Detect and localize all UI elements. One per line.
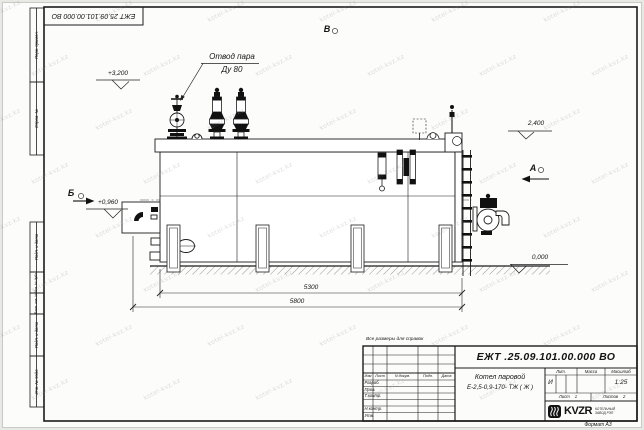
view-label-v: В: [320, 24, 334, 35]
elevation-valves: +3,200: [96, 70, 140, 79]
col-header-data: Дата: [438, 374, 455, 380]
sheets-total-cell: Листов 2: [591, 394, 637, 401]
steam-outlet-valve: [167, 95, 202, 139]
dimension-support-span: 5300: [291, 284, 331, 293]
scale-value: 1:25: [605, 377, 637, 389]
lit-header: Лит.: [545, 369, 577, 375]
margin-label-inv-podl: Инв. № подл.: [30, 356, 44, 407]
margin-label-vzam-inv: Взам. инв. №: [30, 293, 44, 314]
steam-outlet-callout-line2: Ду 80: [206, 64, 258, 75]
safety-valve-2: [233, 88, 250, 139]
sheet-number-cell: Лист 1: [545, 394, 591, 401]
row-label-tkontr: Т.контр.: [365, 394, 387, 400]
margin-label-perv-primen: Перв. примен.: [30, 8, 44, 82]
elevation-burner: +0,960: [88, 199, 128, 208]
rotated-view-icon: [78, 193, 83, 198]
elevation-ground: 0,000: [520, 254, 560, 263]
manufacturer-logo: KVZR КОТЕЛЬНЫЙ ЗАВОД РЭП: [548, 402, 635, 420]
row-label-razrab: Разраб.: [365, 381, 387, 387]
drawing-sheet: ЕЖТ 25.09.101.00.000 ВО Перв. примен. Сп…: [0, 0, 644, 430]
top-stamp-number: ЕЖТ 25.09.101.00.000 ВО: [44, 7, 143, 25]
safety-valve-1: [209, 88, 226, 139]
view-label-a: А: [526, 163, 540, 174]
access-ladder: [462, 150, 473, 276]
sheets-value: 2: [623, 395, 625, 399]
margin-label-sprav-no: Справ. №: [30, 82, 44, 155]
col-header-list: Лист: [373, 374, 387, 380]
sheet-label: Лист: [559, 395, 570, 399]
kvzr-logo-text: KVZR: [564, 406, 592, 417]
title-product-name-line1: Котел паровой: [456, 372, 544, 383]
title-product-name-line2: Е-2,5-0,9-170- ТЖ ( Ж ): [456, 383, 544, 394]
blower-fan: [473, 194, 509, 235]
row-label-prov: Пров.: [365, 387, 387, 393]
row-label-utv: Утв.: [365, 413, 387, 419]
manufacturer-name-line2: ЗАВОД РЭП: [595, 411, 615, 415]
ground-hatch: [150, 266, 550, 275]
row-label-nkontr: Н.контр.: [365, 407, 387, 413]
reference-note: Все размеры для справок: [366, 336, 438, 344]
col-header-doc: N докум.: [387, 374, 418, 380]
elevation-drum-top: 2,400: [516, 120, 556, 129]
margin-label-podp-data-2: Подп. и дата: [30, 314, 44, 356]
lit-value: И: [545, 377, 556, 389]
sheets-label: Листов: [603, 395, 618, 399]
title-doc-number: ЕЖТ .25.09.101.00.000 ВО: [457, 347, 635, 367]
manufacturer-name: КОТЕЛЬНЫЙ ЗАВОД РЭП: [595, 407, 615, 415]
view-label-b: Б: [64, 188, 78, 199]
col-header-podp: Подп.: [418, 374, 438, 380]
dimension-overall-length: 5800: [277, 298, 317, 307]
engineering-drawing-sheet: { "watermark": { "text": "kotel-kvz.kz" …: [0, 0, 644, 430]
scale-header: Масштаб: [605, 369, 637, 375]
sheet-value: 1: [575, 395, 577, 399]
steam-outlet-callout-line1: Отвод пара: [196, 51, 268, 62]
col-header-izm: Изм: [363, 374, 373, 380]
margin-label-inv-dubl: Инв. № дубл.: [30, 272, 44, 293]
kvzr-logo-icon: [548, 405, 561, 418]
margin-label-podp-data-1: Подп. и дата: [30, 222, 44, 272]
format-label: Формат А3: [560, 421, 636, 430]
mass-header: Масса: [577, 369, 605, 375]
